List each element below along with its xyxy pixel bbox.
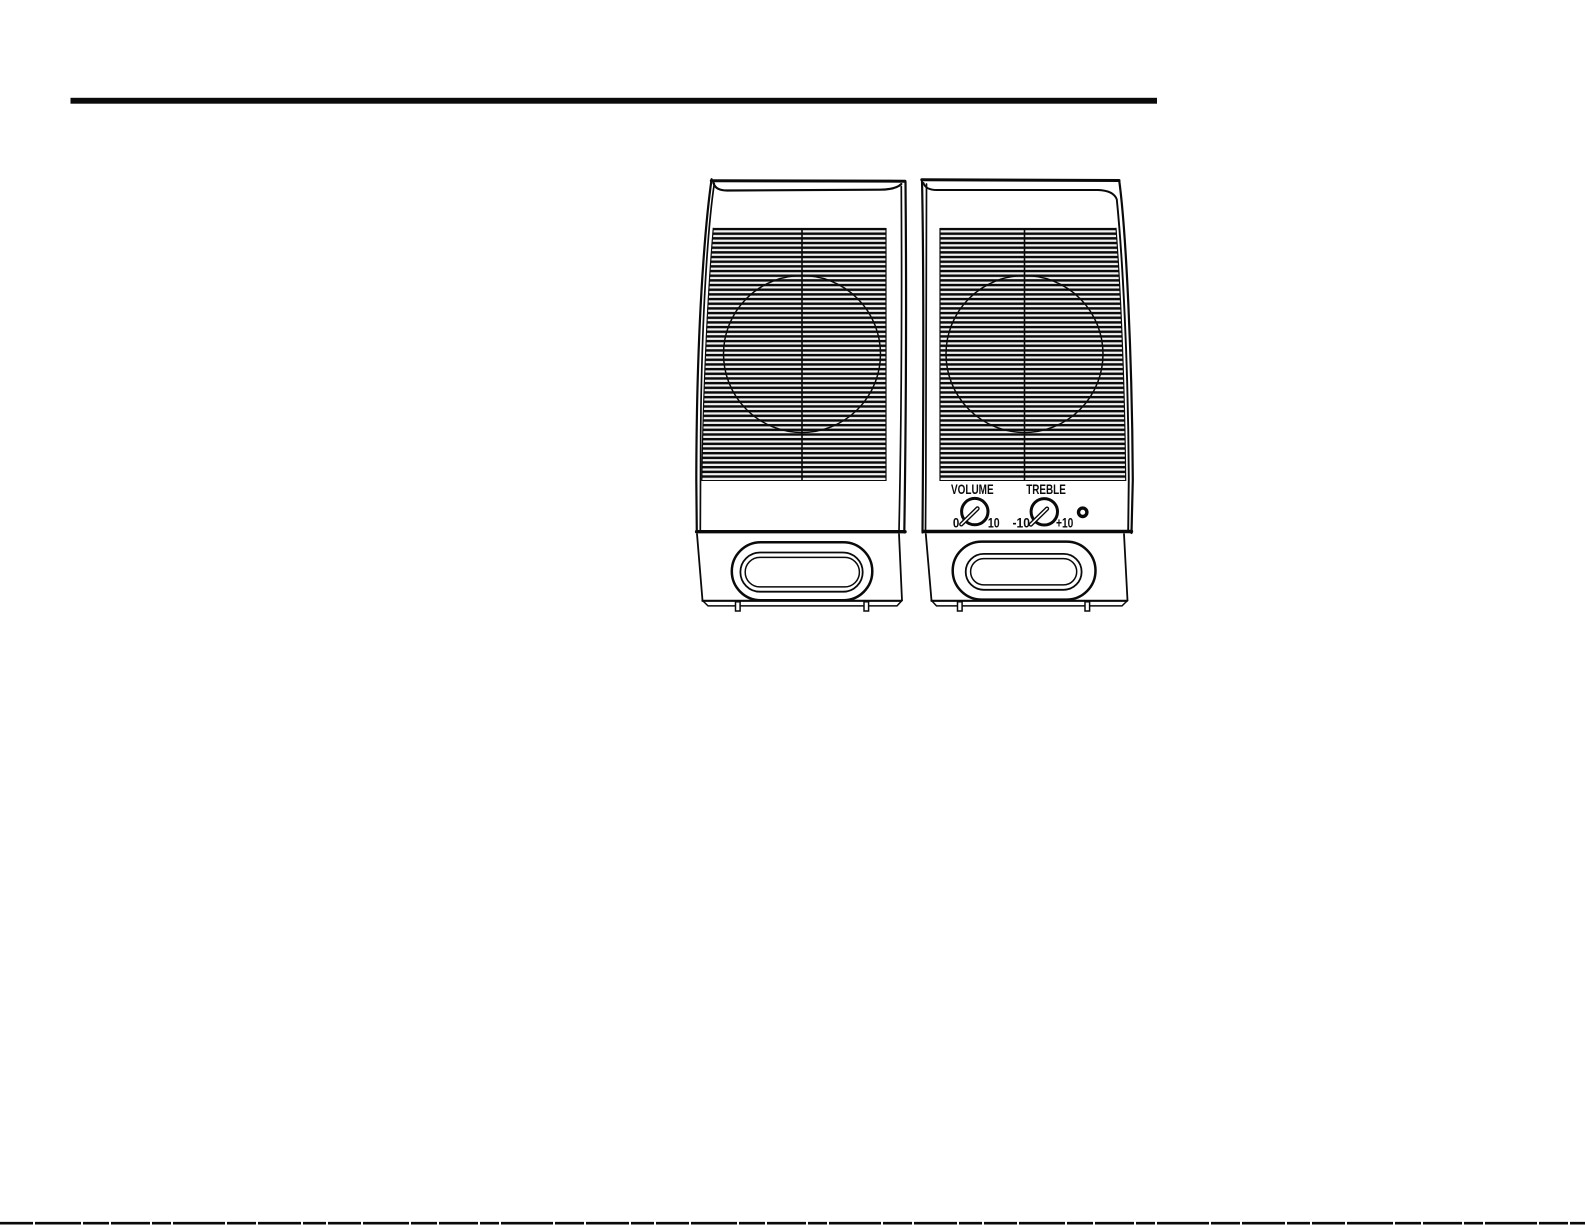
svg-text:TREBLE: TREBLE — [1026, 482, 1066, 497]
svg-text:VOLUME: VOLUME — [951, 482, 994, 497]
svg-text:0: 0 — [953, 515, 959, 530]
svg-text:-10: -10 — [1013, 515, 1030, 530]
svg-text:10: 10 — [988, 515, 1000, 530]
svg-text:+10: +10 — [1056, 515, 1073, 530]
